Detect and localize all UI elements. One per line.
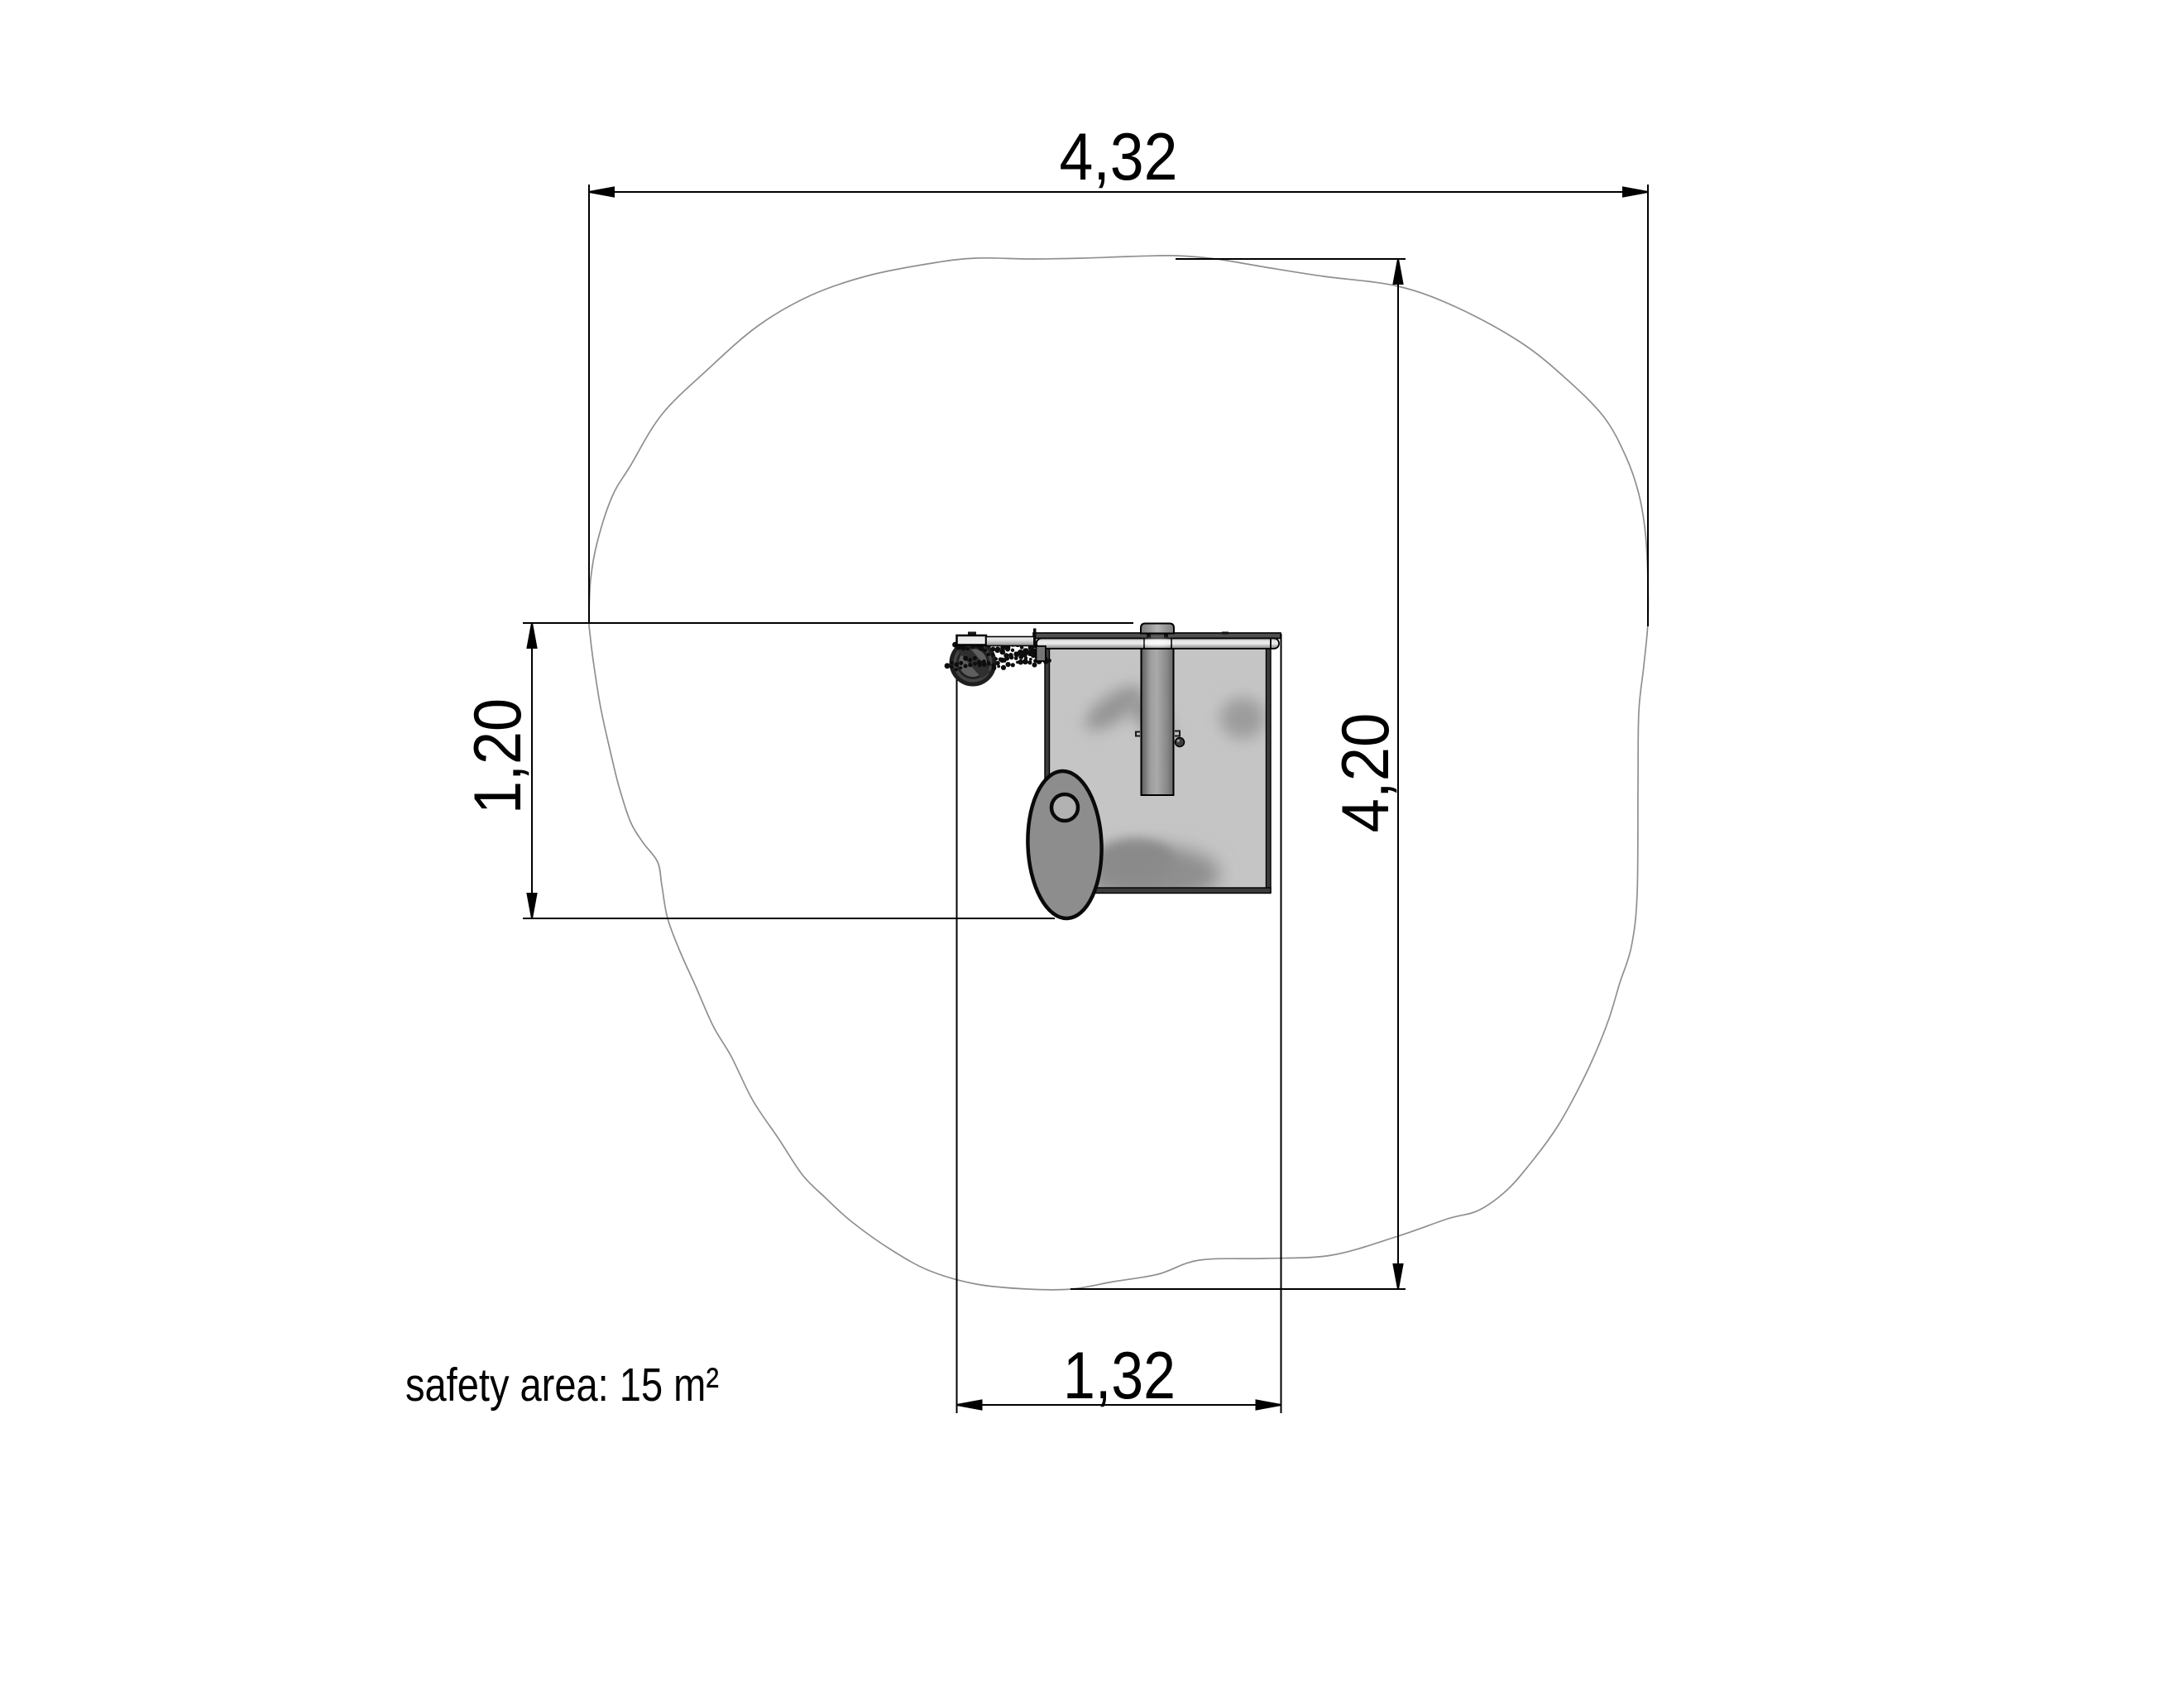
svg-text:4,32: 4,32	[1060, 120, 1178, 194]
svg-text:1,32: 1,32	[1063, 1339, 1176, 1413]
svg-text:safety area: 15 m²: safety area: 15 m²	[405, 1359, 719, 1412]
svg-text:1,20: 1,20	[461, 698, 535, 814]
svg-text:4,20: 4,20	[1329, 713, 1403, 833]
